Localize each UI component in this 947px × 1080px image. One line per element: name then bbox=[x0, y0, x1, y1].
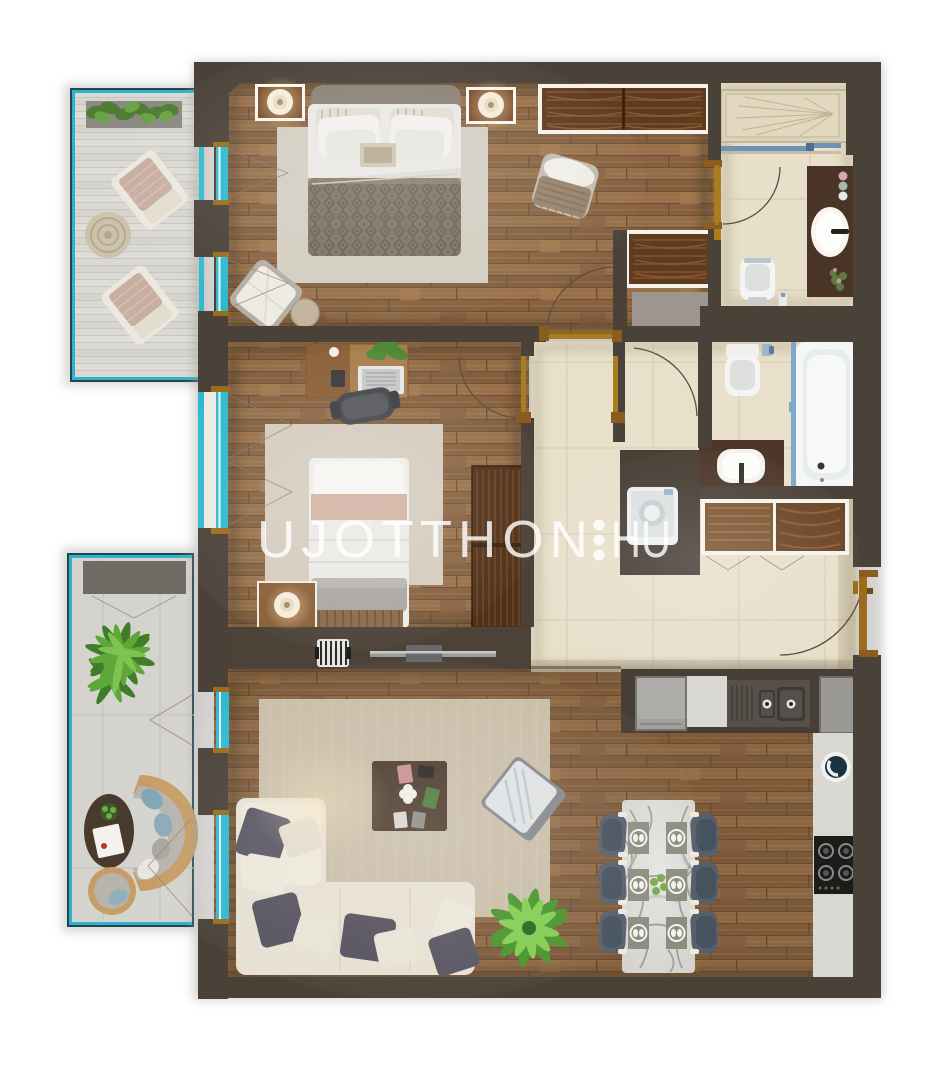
svg-text:UJOTTHON: UJOTTHON bbox=[257, 511, 594, 569]
svg-text:HU: HU bbox=[611, 511, 671, 569]
